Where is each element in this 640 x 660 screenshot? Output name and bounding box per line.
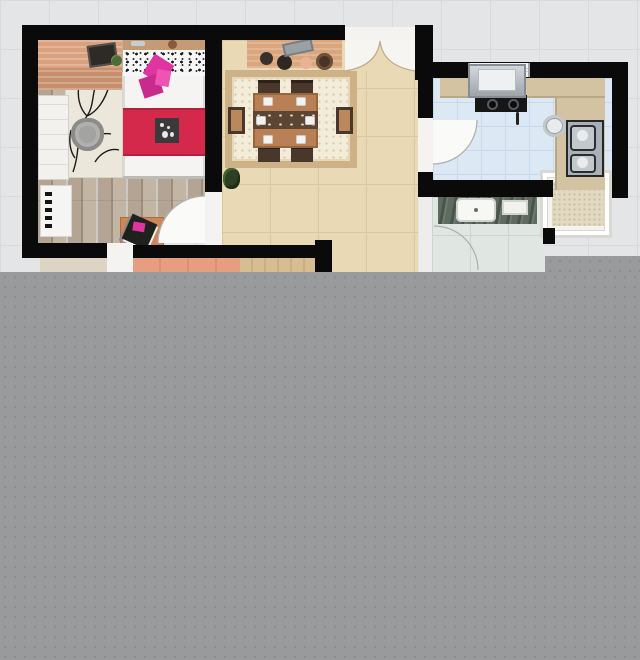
desk-plant xyxy=(111,55,122,66)
ottoman xyxy=(71,118,104,151)
burner xyxy=(508,99,519,110)
range-hood xyxy=(468,64,526,98)
hall-doorway xyxy=(107,243,133,272)
sideboard-bowl xyxy=(260,52,273,65)
floorplan-screenshot xyxy=(0,0,640,660)
wall-bottom-middle xyxy=(133,245,322,258)
dining-armchair-left xyxy=(228,107,245,134)
sink-basin xyxy=(570,154,596,173)
wall-kitchen-right xyxy=(612,62,628,198)
pink-cushion xyxy=(155,69,172,87)
sideboard-bowl xyxy=(277,55,292,70)
bathroom-tray xyxy=(502,200,528,215)
kitchen-bowl xyxy=(543,115,566,137)
bed-footboard xyxy=(123,176,205,179)
kitchen-doorway xyxy=(418,118,433,172)
dining-chair-bottom-right xyxy=(291,146,313,162)
place-setting xyxy=(263,97,273,106)
blanket-motif xyxy=(155,118,179,143)
place-setting xyxy=(296,97,306,106)
gray-mask-notch xyxy=(545,256,640,272)
wall-bathroom-right xyxy=(543,228,555,244)
double-door-threshold xyxy=(345,27,415,41)
potted-plant xyxy=(223,168,240,189)
wall-bedroom-dining xyxy=(205,40,222,192)
wall-bedroom-bottom xyxy=(22,243,107,258)
utensil xyxy=(516,112,519,125)
double-sink xyxy=(566,120,604,177)
place-setting xyxy=(263,135,273,144)
burner xyxy=(487,99,498,110)
bathroom-sink xyxy=(456,198,496,222)
bathroom-partition xyxy=(419,197,432,272)
sideboard-plate xyxy=(300,57,312,69)
hallway-floor xyxy=(40,258,107,272)
radiator-shelf xyxy=(40,185,72,237)
dining-chair-bottom-left xyxy=(258,146,280,162)
wall-stub-vertical xyxy=(315,240,332,272)
wall-kitchen-bottom xyxy=(425,180,553,197)
place-setting xyxy=(256,116,266,125)
bedroom-doorway xyxy=(205,192,222,245)
sideboard-platter xyxy=(316,53,333,70)
wardrobe xyxy=(38,95,69,180)
place-setting xyxy=(296,135,306,144)
dining-armchair-right xyxy=(336,107,353,134)
wall-top xyxy=(22,25,345,40)
place-setting xyxy=(305,116,315,125)
wall-dining-kitchen-upper xyxy=(418,80,433,118)
gray-mask-overlay xyxy=(0,272,640,660)
wall-left xyxy=(22,25,38,258)
sink-basin xyxy=(570,125,596,151)
